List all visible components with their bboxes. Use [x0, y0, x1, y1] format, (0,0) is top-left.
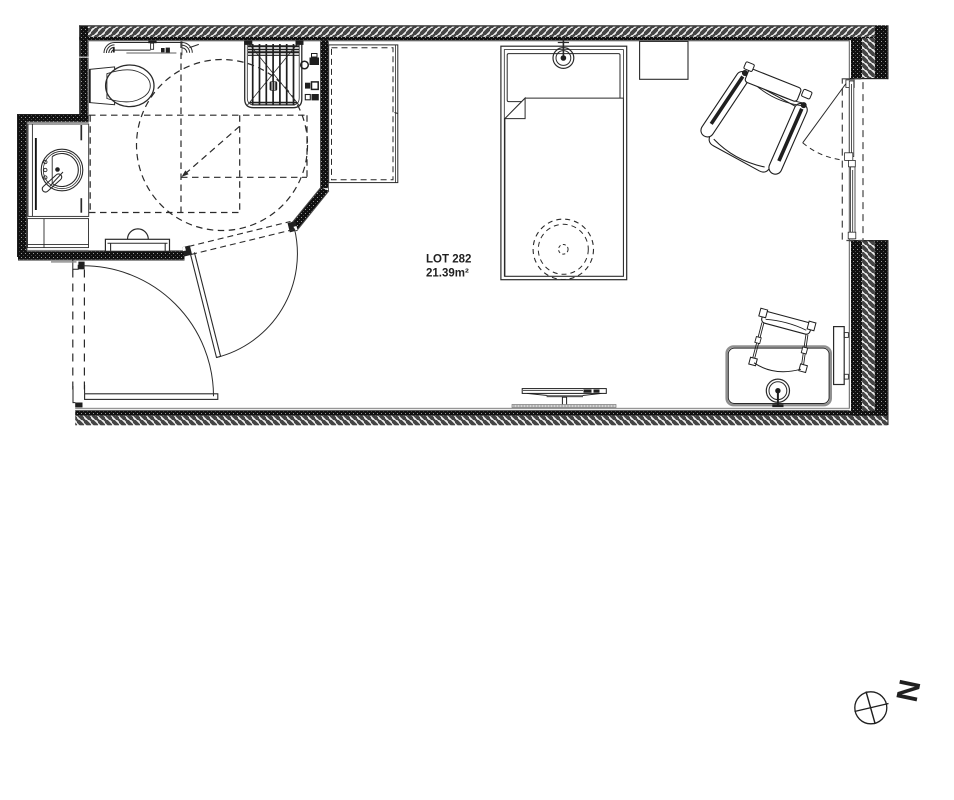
svg-text:LOT 282: LOT 282	[426, 254, 471, 266]
svg-text:21.39m²: 21.39m²	[426, 268, 469, 280]
